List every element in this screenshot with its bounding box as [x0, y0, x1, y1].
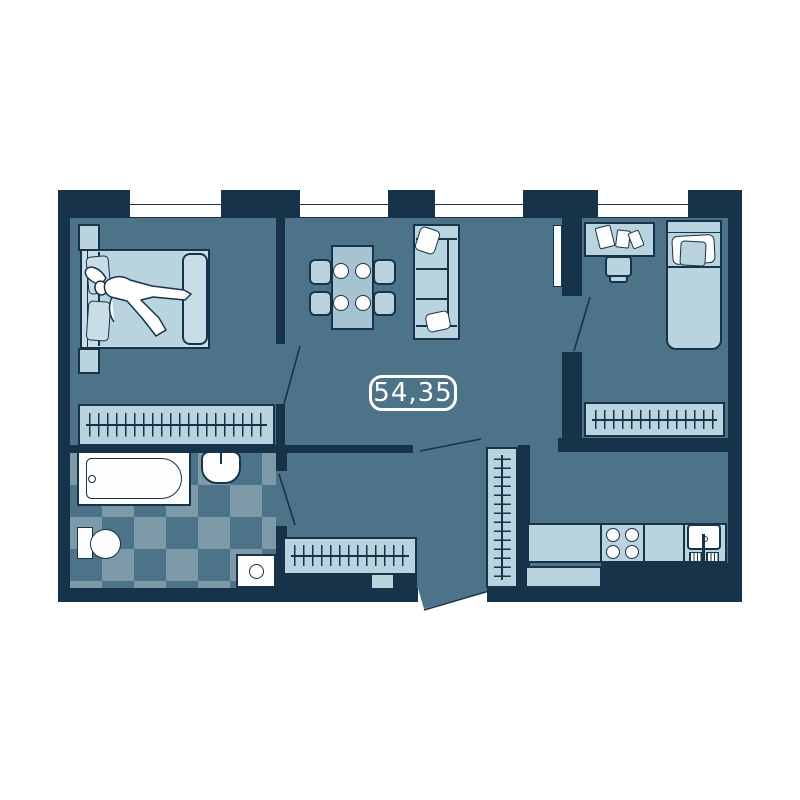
nightstand-icon [78, 348, 100, 374]
single-bed-icon [666, 220, 722, 350]
wall-bedroom2-left-lower [562, 352, 582, 452]
wall-hall-top [287, 445, 413, 453]
stove-burner-icon [625, 545, 639, 559]
hall-plinth-notch [372, 574, 393, 588]
clothes-rack-icon [486, 447, 518, 588]
sofa-cushion-line [416, 268, 448, 270]
nightstand-icon [78, 224, 100, 251]
washbasin-faucet [220, 447, 222, 464]
plate-icon [333, 263, 349, 279]
counter-divider [683, 524, 685, 562]
kitchen-counter-return [525, 566, 602, 588]
door-swing-entrance [424, 591, 489, 610]
window-icon [300, 190, 388, 217]
bathtub-icon [77, 451, 191, 506]
stove-burner-icon [606, 545, 620, 559]
bed-pillow-inner [679, 240, 706, 266]
toilet-icon [90, 529, 121, 559]
bed-pillow [86, 300, 112, 342]
blanket-edge [668, 266, 720, 268]
washing-machine-door [249, 564, 264, 579]
chair-icon [309, 291, 332, 316]
stove-burner-icon [625, 528, 639, 542]
plate-icon [333, 295, 349, 311]
entrance-door-floor [418, 588, 487, 609]
window-icon [598, 190, 688, 217]
desk-chair-back [609, 275, 628, 283]
sink-drainer [689, 552, 702, 562]
chair-icon [373, 291, 396, 316]
floor-plan: 54,35 [0, 0, 800, 800]
dining-table-icon [331, 245, 374, 330]
clothes-rack-icon [584, 402, 725, 437]
sink-drainer [706, 552, 719, 562]
counter-divider [643, 524, 645, 562]
chair-icon [309, 259, 332, 285]
washbasin-faucet-bar [214, 447, 228, 449]
counter-divider [600, 524, 602, 562]
outer-wall-bottom-right [487, 588, 742, 602]
kitchen-faucet [702, 534, 705, 562]
plate-icon [355, 263, 371, 279]
bed-blanket [98, 252, 184, 346]
double-bed-icon [80, 249, 210, 349]
desk-chair-icon [605, 256, 632, 277]
bed-duvet-roll [182, 253, 208, 345]
outer-wall-right [728, 190, 742, 602]
area-label: 54,35 [369, 375, 457, 411]
washing-machine-icon [236, 554, 276, 588]
outer-wall-left [58, 190, 70, 602]
kitchen-wall-fill [601, 563, 728, 588]
wall-bedroom2-kitchen [558, 438, 742, 452]
stove-burner-icon [606, 528, 620, 542]
outer-wall-bottom-left [58, 588, 418, 602]
wall-bathroom-right-upper [276, 453, 287, 471]
plate-icon [355, 295, 371, 311]
door-leaf-icon [553, 225, 562, 287]
clothes-rack-icon [78, 404, 275, 446]
bed-pillow [85, 255, 111, 295]
area-value: 54,35 [373, 378, 452, 408]
window-icon [435, 190, 523, 217]
wall-bedroom1-right-upper [276, 218, 285, 344]
wall-bedroom2-left-upper [562, 218, 582, 296]
window-icon [130, 190, 221, 217]
sofa-cushion-line [416, 298, 448, 300]
clothes-rack-icon [283, 537, 417, 575]
chair-icon [373, 259, 396, 285]
bed-headboard [668, 222, 720, 233]
